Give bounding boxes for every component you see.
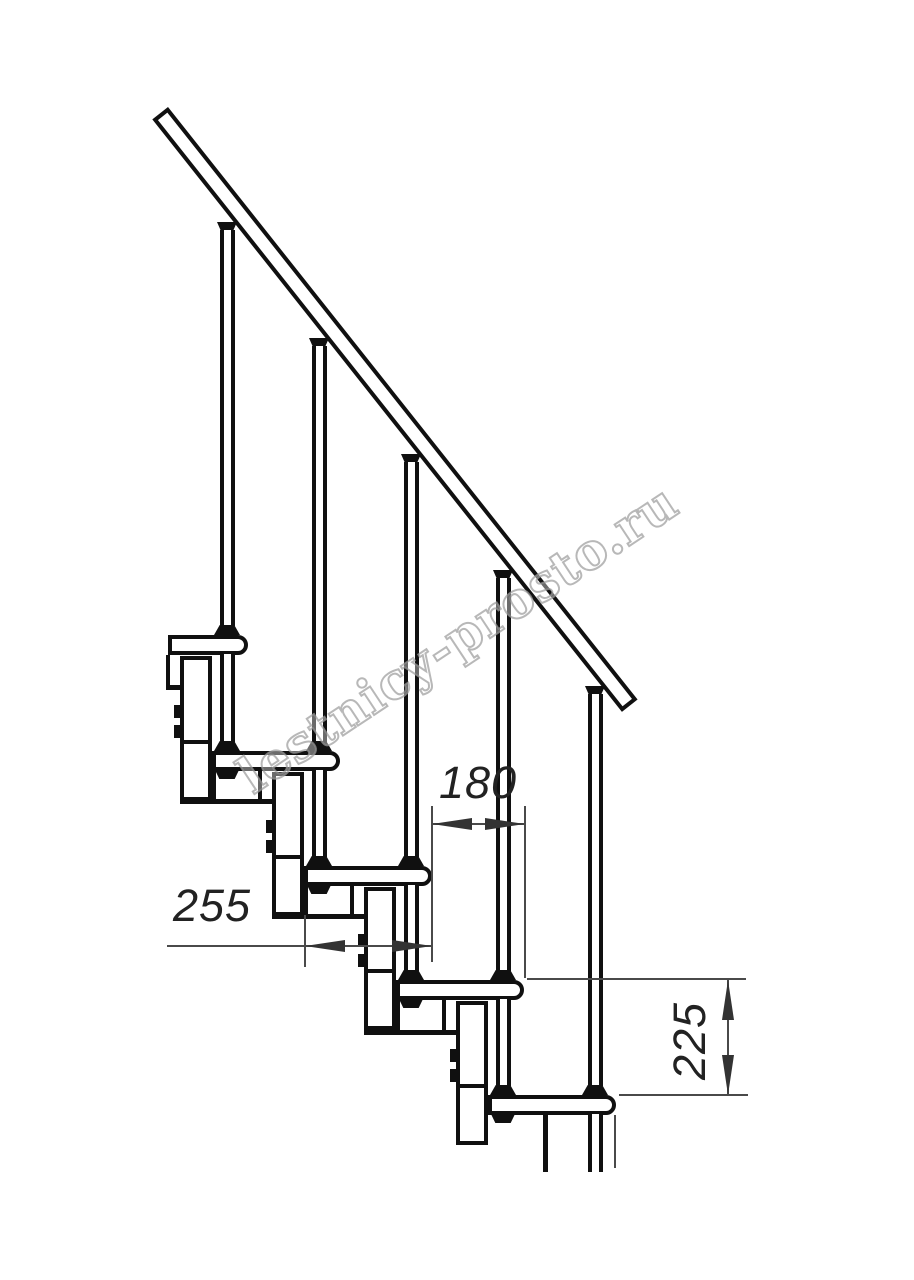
bracket-vertical <box>212 771 216 803</box>
baluster <box>312 346 327 742</box>
support-module-column <box>456 1001 488 1145</box>
support-rod-foot <box>306 856 332 866</box>
support-rod-foot <box>398 970 424 980</box>
module-joint-line <box>272 855 304 859</box>
baluster-foot <box>214 625 240 635</box>
module-joint-line <box>180 740 212 744</box>
support-rod <box>588 1114 603 1172</box>
baluster <box>588 694 603 1086</box>
module-bolt <box>450 1069 460 1082</box>
bracket-vertical <box>304 886 308 918</box>
support-module-column <box>364 887 396 1030</box>
bracket-vertical <box>350 886 354 918</box>
module-bolt <box>266 820 276 833</box>
dim-arrow-right <box>485 818 525 830</box>
dimension-label-tread-depth: 255 <box>166 883 258 928</box>
baluster-foot <box>582 1085 608 1095</box>
dim-arrow-right <box>392 940 432 952</box>
fastening-nut <box>491 1114 515 1123</box>
dimension-label-step-run: 180 <box>430 760 526 805</box>
staircase-drawing-canvas: 180 255 225 lestnicy-prosto.ru <box>0 0 914 1280</box>
support-rod <box>220 654 235 742</box>
module-joint-line <box>456 1084 488 1088</box>
tread <box>488 1095 616 1115</box>
baluster-foot <box>490 970 516 980</box>
bracket-vertical <box>166 655 170 689</box>
baluster <box>404 462 419 857</box>
tread <box>168 635 248 655</box>
extension-line <box>527 978 746 980</box>
support-module-column <box>180 656 212 801</box>
baluster <box>220 230 235 626</box>
dim-arrow-down <box>722 1055 734 1095</box>
fastening-nut <box>215 770 239 779</box>
tread <box>396 980 524 1000</box>
bracket-vertical <box>258 771 262 803</box>
bracket-junction-line <box>166 685 184 690</box>
module-bolt <box>450 1049 460 1062</box>
support-rod-foot <box>214 741 240 751</box>
cut-edge-line <box>614 1115 616 1168</box>
bracket-vertical <box>442 1000 446 1032</box>
support-module-column <box>272 772 304 916</box>
module-bolt <box>266 840 276 853</box>
support-rod <box>404 885 419 971</box>
module-bolt <box>174 725 184 738</box>
support-rod-foot <box>490 1085 516 1095</box>
dim-arrow-up <box>722 980 734 1020</box>
module-bolt <box>174 705 184 718</box>
module-bolt <box>358 954 368 967</box>
dimension-label-step-rise: 225 <box>667 979 713 1103</box>
dim-arrow-left <box>432 818 472 830</box>
dim-arrow-left <box>305 940 345 952</box>
baluster-foot <box>306 741 332 751</box>
support-rod <box>496 999 511 1086</box>
extension-line <box>524 806 526 978</box>
fastening-nut <box>399 999 423 1008</box>
fastening-nut <box>307 885 331 894</box>
tread <box>212 751 340 771</box>
baluster-foot <box>398 856 424 866</box>
module-joint-line <box>364 969 396 973</box>
support-rod <box>312 770 327 857</box>
bracket-vertical <box>396 1000 400 1032</box>
next-module-edge <box>543 1115 548 1172</box>
tread <box>304 866 432 886</box>
